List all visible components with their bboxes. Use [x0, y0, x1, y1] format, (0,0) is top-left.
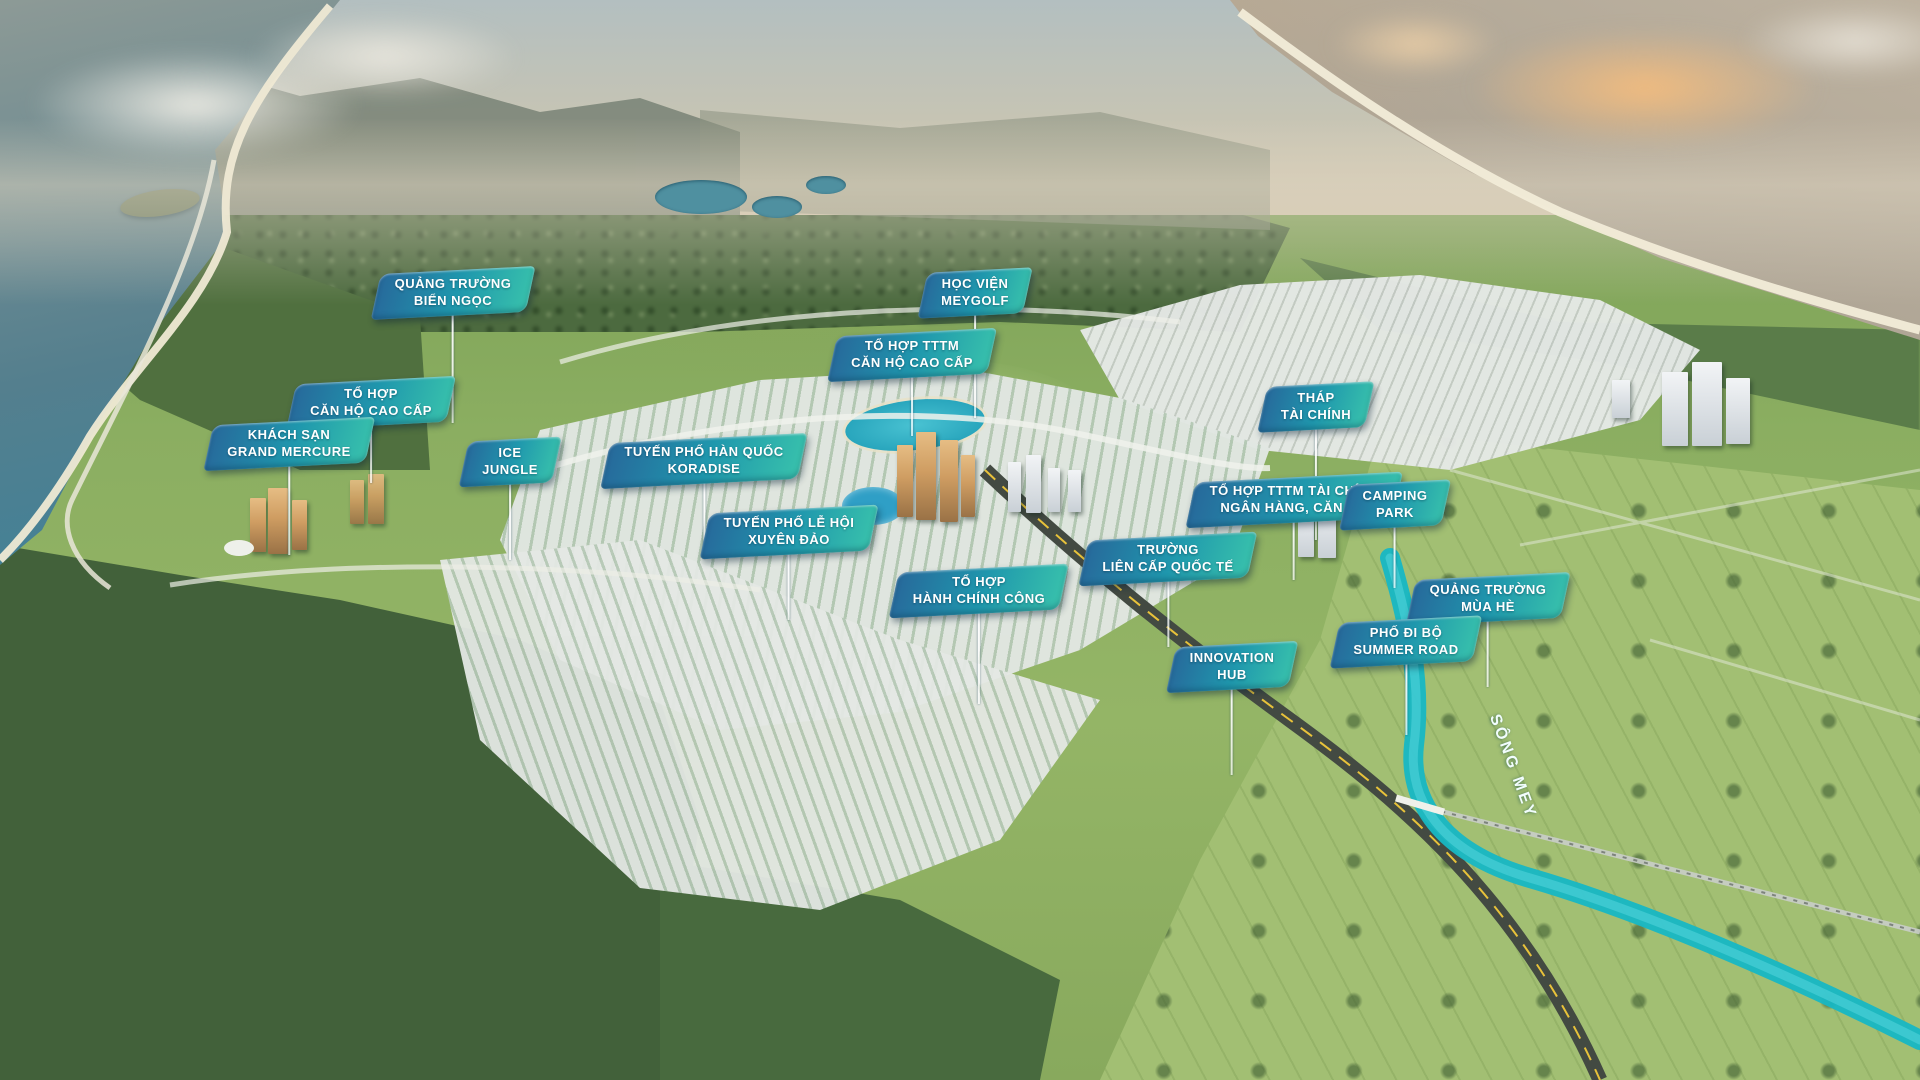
flag-label-line: QUẢNG TRƯỜNG [395, 276, 512, 293]
map-flag-quang-truong-mua-he: QUẢNG TRƯỜNGMÙA HÈ [1412, 576, 1565, 622]
map-flag-hoc-vien-meygolf: HỌC VIỆNMEYGOLF [923, 270, 1027, 316]
map-callout-tuyen-pho-le-hoi-xuyen-dao: TUYẾN PHỐ LỄ HỘIXUYÊN ĐẢO [706, 509, 873, 620]
leader-line [911, 376, 913, 436]
flag-label-line: SUMMER ROAD [1353, 642, 1458, 659]
leader-line [509, 483, 511, 560]
map-flag-to-hop-hanh-chinh-cong: TỔ HỢPHÀNH CHÍNH CÔNG [895, 568, 1063, 614]
flag-label-line: TỔ HỢP [913, 574, 1045, 591]
flag-label-line: HÀNH CHÍNH CÔNG [913, 591, 1045, 608]
flag-label-line: ICE [482, 445, 538, 462]
map-callout-khach-san-grand-mercure: KHÁCH SẠNGRAND MERCURE [209, 421, 369, 555]
flag-label-line: MÙA HÈ [1430, 599, 1547, 616]
flag-label: KHÁCH SẠNGRAND MERCURE [227, 427, 351, 461]
flag-label-line: TỔ HỢP [310, 386, 432, 403]
seaside-condo-3 [1726, 378, 1750, 444]
golden-tower-4 [961, 455, 975, 517]
flag-label: INNOVATIONHUB [1190, 650, 1275, 684]
flag-label-line: MEYGOLF [941, 293, 1009, 310]
leader-line [1487, 620, 1489, 687]
leader-line [1167, 580, 1169, 647]
map-flag-tuyen-pho-le-hoi-xuyen-dao: TUYẾN PHỐ LỄ HỘIXUYÊN ĐẢO [706, 509, 873, 555]
seaside-condo-4 [1612, 380, 1630, 418]
flag-label-line: TUYẾN PHỐ LỄ HỘI [724, 515, 855, 532]
flag-label-line: KHÁCH SẠN [227, 427, 351, 444]
map-callout-innovation-hub: INNOVATIONHUB [1172, 644, 1293, 775]
map-callout-camping-park: CAMPINGPARK [1345, 482, 1446, 588]
map-callout-to-hop-hanh-chinh-cong: TỔ HỢPHÀNH CHÍNH CÔNG [895, 568, 1063, 704]
flag-label-line: CĂN HỘ CAO CẤP [851, 355, 973, 372]
flag-label-line: QUẢNG TRƯỜNG [1430, 582, 1547, 599]
midtown-tower-3 [1048, 468, 1060, 512]
flag-label: TUYẾN PHỐ LỄ HỘIXUYÊN ĐẢO [724, 515, 855, 549]
map-callout-pho-di-bo-summer-road: PHỐ ĐI BỘSUMMER ROAD [1335, 619, 1476, 735]
leader-line [288, 465, 290, 555]
flag-label-line: TÀI CHÍNH [1281, 407, 1351, 424]
flag-label-line: BIỂN NGỌC [395, 293, 512, 310]
map-flag-quang-truong-bien-ngoc: QUẢNG TRƯỜNGBIỂN NGỌC [377, 270, 530, 316]
flag-label-line: HỌC VIỆN [941, 276, 1009, 293]
map-flag-thap-tai-chinh: THÁPTÀI CHÍNH [1263, 384, 1369, 430]
flag-label-line: TUYẾN PHỐ HÀN QUỐC [624, 444, 783, 461]
leader-line [978, 612, 980, 704]
flag-label: PHỐ ĐI BỘSUMMER ROAD [1353, 625, 1458, 659]
flag-label-line: XUYÊN ĐẢO [724, 532, 855, 549]
flag-label-line: KORADISE [624, 461, 783, 478]
flag-label: TỔ HỢP TTTMCĂN HỘ CAO CẤP [851, 338, 973, 372]
seaside-condo-2 [1692, 362, 1722, 446]
leader-line [1405, 663, 1407, 735]
map-flag-to-hop-tttm-can-ho-cao-cap: TỔ HỢP TTTMCĂN HỘ CAO CẤP [833, 332, 991, 378]
leader-line [1231, 688, 1233, 775]
leader-line [1293, 521, 1295, 580]
midtown-tower-1 [1008, 462, 1021, 512]
map-callout-ice-jungle: ICEJUNGLE [464, 439, 556, 560]
flag-label-line: TỔ HỢP TTTM [851, 338, 973, 355]
map-flag-innovation-hub: INNOVATIONHUB [1172, 644, 1293, 690]
west-boulevard [170, 567, 760, 590]
flag-label-line: GRAND MERCURE [227, 444, 351, 461]
golden-tower-2 [916, 432, 936, 520]
flag-label: ICEJUNGLE [482, 445, 538, 479]
masterplan-render: SÔNG MEY QUẢNG TRƯỜNGBIỂN NGỌCHỌC VIỆNME… [0, 0, 1920, 1080]
map-flag-tuyen-pho-han-quoc-koradise: TUYẾN PHỐ HÀN QUỐCKORADISE [606, 438, 801, 484]
flag-label-line: INNOVATION [1190, 650, 1275, 667]
flag-label-line: CAMPING [1363, 488, 1428, 505]
flag-label: CAMPINGPARK [1363, 488, 1428, 522]
flag-label: TUYẾN PHỐ HÀN QUỐCKORADISE [624, 444, 783, 478]
seaside-condo-1 [1662, 372, 1688, 446]
flag-label-line: THÁP [1281, 390, 1351, 407]
flag-label: QUẢNG TRƯỜNGBIỂN NGỌC [395, 276, 512, 310]
midtown-tower-2 [1026, 455, 1041, 513]
map-callout-to-hop-tttm-can-ho-cao-cap: TỔ HỢP TTTMCĂN HỘ CAO CẤP [833, 332, 991, 436]
flag-label: HỌC VIỆNMEYGOLF [941, 276, 1009, 310]
flag-label: THÁPTÀI CHÍNH [1281, 390, 1351, 424]
flag-label: TỔ HỢPHÀNH CHÍNH CÔNG [913, 574, 1045, 608]
leader-line [1394, 526, 1396, 588]
leader-line [788, 553, 790, 620]
beach-east [1240, 12, 1920, 330]
flag-label-line: PARK [1363, 505, 1428, 522]
midtown-tower-4 [1068, 470, 1081, 512]
golden-tower-3 [940, 440, 958, 522]
map-flag-pho-di-bo-summer-road: PHỐ ĐI BỘSUMMER ROAD [1335, 619, 1476, 665]
flag-label-line: PHỐ ĐI BỘ [1353, 625, 1458, 642]
map-flag-khach-san-grand-mercure: KHÁCH SẠNGRAND MERCURE [209, 421, 369, 467]
flag-label-line: HUB [1190, 667, 1275, 684]
flag-label-line: JUNGLE [482, 462, 538, 479]
leader-line [452, 314, 454, 423]
golden-tower-1 [897, 445, 913, 517]
map-flag-camping-park: CAMPINGPARK [1345, 482, 1446, 528]
map-flag-ice-jungle: ICEJUNGLE [464, 439, 556, 485]
flag-label: QUẢNG TRƯỜNGMÙA HÈ [1430, 582, 1547, 616]
flag-label: TỔ HỢPCĂN HỘ CAO CẤP [310, 386, 432, 420]
